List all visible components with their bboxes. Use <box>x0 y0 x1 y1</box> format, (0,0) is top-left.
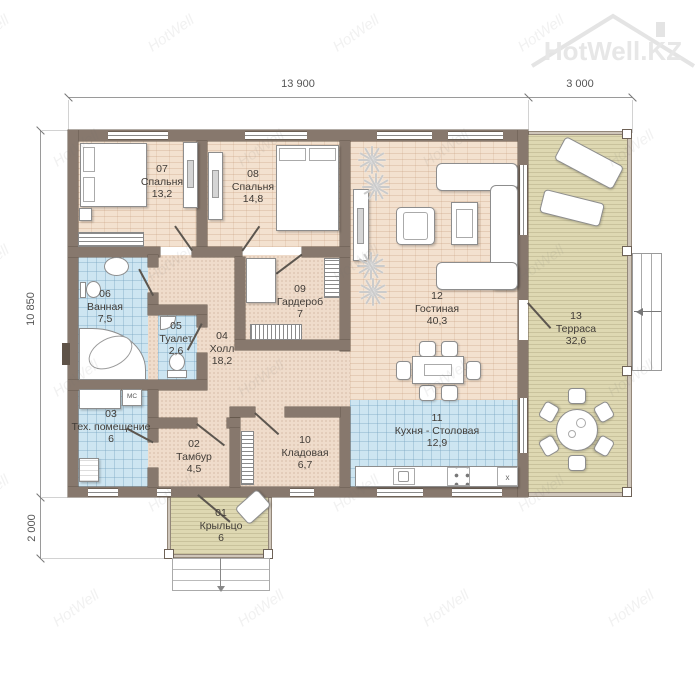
room-label-kitchen: 11Кухня - Столовая12,9 <box>377 412 497 450</box>
wall-wardrobe-north <box>302 247 350 257</box>
pillow <box>83 147 95 172</box>
dimension-line-left-porch <box>40 497 41 558</box>
washing-machine-label: МС <box>122 393 142 401</box>
dimension-label-left-main: 10 850 <box>25 277 37 341</box>
extension-line <box>42 558 168 559</box>
extension-line <box>42 497 68 498</box>
terrace-chair <box>568 388 586 404</box>
extension-line <box>42 130 68 131</box>
terrace-railing-top <box>528 131 632 135</box>
window <box>108 131 168 140</box>
stair-arrow-head <box>217 586 225 596</box>
table-plate <box>576 418 586 428</box>
terrace-post <box>622 366 632 376</box>
plant-icon <box>362 173 390 201</box>
window <box>519 398 528 453</box>
terrace-post <box>622 246 632 256</box>
kitchen-counter <box>355 466 518 487</box>
extension-line <box>68 100 69 130</box>
sofa-bottom <box>436 262 518 290</box>
room-label-living-room: 12Гостиная40,3 <box>377 290 497 328</box>
brand-logo: HotWell.KZ <box>528 6 698 78</box>
floor-plan: HotWell.KZ 13 900 3 000 10 850 2 000 <box>0 0 700 677</box>
room-label-storage: 10Кладовая6,7 <box>245 434 365 472</box>
table-plate <box>568 430 576 438</box>
window <box>448 131 503 140</box>
closet-shelf <box>78 232 144 247</box>
window <box>245 131 307 140</box>
room-label-toilet: 05Туалет2,6 <box>116 320 236 358</box>
pillow <box>309 148 336 161</box>
terrace-chair <box>568 455 586 471</box>
wall-vestibule-top <box>227 418 240 428</box>
dimension-line-left-main <box>40 130 41 497</box>
dining-chair <box>441 341 458 357</box>
terrace-railing-bottom <box>528 492 632 497</box>
dining-chair <box>441 385 458 401</box>
window <box>377 488 423 497</box>
wall-storage-top <box>230 407 255 417</box>
svg-text:HotWell.KZ: HotWell.KZ <box>544 36 682 66</box>
room-label-bathroom: 06Ванная7,5 <box>45 288 165 326</box>
dining-table-center <box>424 364 452 376</box>
boiler <box>79 458 99 482</box>
extension-line <box>632 100 633 133</box>
window <box>88 488 118 497</box>
wall-vent <box>62 343 70 365</box>
dining-chair <box>419 341 436 357</box>
sink-basin <box>398 471 409 482</box>
stair-step-line <box>173 569 269 570</box>
window <box>519 165 528 235</box>
room-label-wardrobe: 09Гардероб7 <box>240 283 360 321</box>
dimension-line-top-main <box>68 97 528 98</box>
dining-chair <box>396 361 411 380</box>
wall-bedroom1-south <box>68 247 160 257</box>
terrace-post <box>622 487 632 497</box>
plant-icon <box>357 252 385 280</box>
window <box>290 488 314 497</box>
window <box>452 488 502 497</box>
window <box>157 488 171 497</box>
dining-chair <box>419 385 436 401</box>
extension-line <box>528 100 529 130</box>
window <box>377 131 432 140</box>
room-label-tech-room: 03Тех. помещение6 <box>51 408 171 446</box>
stair-step-line <box>173 580 269 581</box>
dimension-label-top-terrace: 3 000 <box>520 78 640 90</box>
armchair-cushion <box>403 212 428 240</box>
wall-bedroom2-south <box>192 247 242 257</box>
room-label-terrace: 13Терраса32,6 <box>516 310 636 348</box>
wall-storage-top <box>285 407 340 417</box>
room-label-bedroom2: 08Спальня14,8 <box>193 168 313 206</box>
stove <box>447 467 470 486</box>
dimension-label-left-porch: 2 000 <box>26 496 38 560</box>
dining-chair <box>466 361 481 380</box>
dimension-label-top-main: 13 900 <box>238 78 358 90</box>
fridge: x <box>497 467 518 486</box>
room-label-porch: 01Крыльцо6 <box>161 507 281 545</box>
pillow <box>279 148 306 161</box>
toilet-tank <box>167 370 187 378</box>
terrace-post <box>622 129 632 139</box>
pillow <box>83 177 95 202</box>
dimension-line-top-terrace <box>528 97 632 98</box>
tv-icon <box>357 208 364 244</box>
nightstand <box>79 208 92 221</box>
roof-logo-icon: HotWell.KZ <box>528 6 698 78</box>
coffee-table-top <box>456 209 473 238</box>
tech-counter <box>79 389 121 409</box>
plant-icon <box>358 146 386 174</box>
stair-step-line <box>651 254 652 370</box>
sink <box>104 257 129 276</box>
round-table <box>556 409 598 451</box>
wall-bathroom-right <box>148 255 158 267</box>
